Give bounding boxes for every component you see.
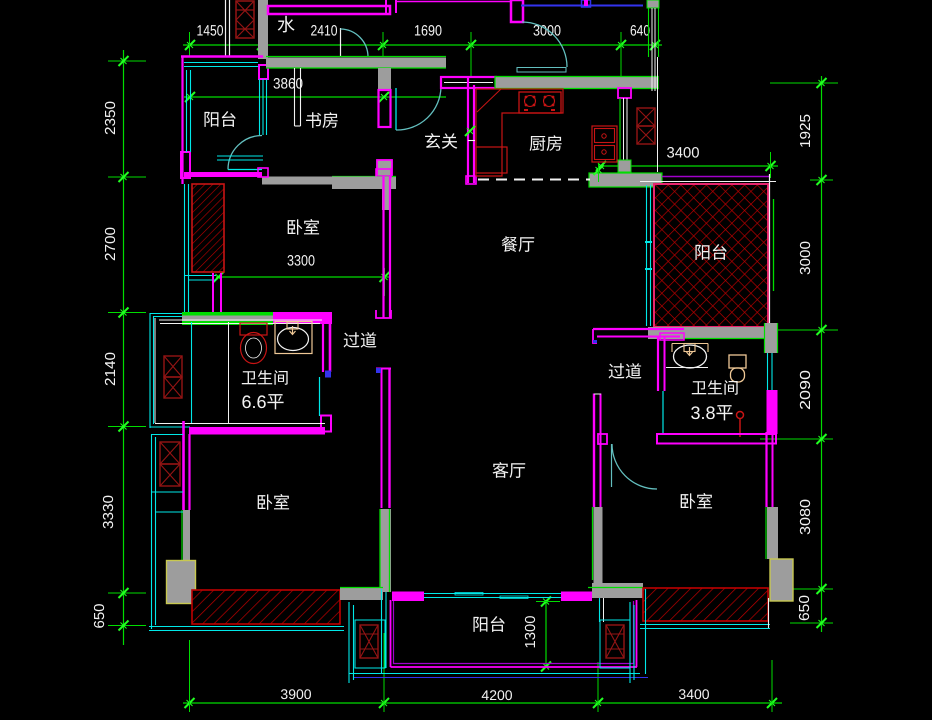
svg-text:1450: 1450 — [197, 23, 224, 40]
svg-text:3000: 3000 — [798, 241, 814, 275]
svg-text:餐厅: 餐厅 — [501, 236, 535, 255]
svg-text:客厅: 客厅 — [492, 462, 526, 481]
svg-text:3300: 3300 — [287, 253, 315, 270]
svg-text:6.6平: 6.6平 — [241, 392, 284, 412]
svg-text:卫生间: 卫生间 — [241, 370, 289, 388]
svg-text:阳台: 阳台 — [472, 616, 506, 635]
svg-text:2700: 2700 — [103, 227, 119, 261]
svg-text:3400: 3400 — [678, 686, 709, 702]
svg-text:过道: 过道 — [343, 332, 377, 351]
svg-text:2350: 2350 — [103, 101, 119, 135]
svg-text:650: 650 — [92, 604, 108, 629]
svg-text:3330: 3330 — [101, 495, 117, 529]
svg-text:3400: 3400 — [667, 145, 700, 162]
svg-text:阳台: 阳台 — [694, 244, 728, 263]
svg-text:1300: 1300 — [523, 616, 539, 649]
svg-text:3.8平: 3.8平 — [690, 403, 733, 423]
svg-text:640: 640 — [630, 23, 650, 40]
svg-text:4200: 4200 — [481, 687, 512, 703]
svg-text:卧室: 卧室 — [256, 494, 290, 513]
svg-text:书房: 书房 — [305, 112, 339, 131]
svg-text:玄关: 玄关 — [424, 133, 458, 152]
svg-text:厨房: 厨房 — [529, 135, 563, 154]
svg-text:卧室: 卧室 — [679, 493, 713, 512]
svg-text:3080: 3080 — [798, 499, 814, 535]
svg-text:2090: 2090 — [798, 370, 814, 410]
svg-text:2410: 2410 — [311, 23, 338, 40]
svg-text:650: 650 — [797, 595, 813, 621]
svg-text:过道: 过道 — [608, 363, 642, 382]
svg-text:阳台: 阳台 — [203, 111, 237, 130]
svg-text:1690: 1690 — [414, 23, 442, 40]
svg-text:卧室: 卧室 — [286, 219, 320, 238]
svg-text:3860: 3860 — [273, 76, 303, 93]
svg-text:卫生间: 卫生间 — [691, 380, 739, 398]
svg-text:3900: 3900 — [280, 686, 311, 702]
svg-text:2140: 2140 — [103, 352, 119, 386]
svg-text:水: 水 — [277, 15, 295, 35]
svg-text:1925: 1925 — [798, 114, 814, 148]
